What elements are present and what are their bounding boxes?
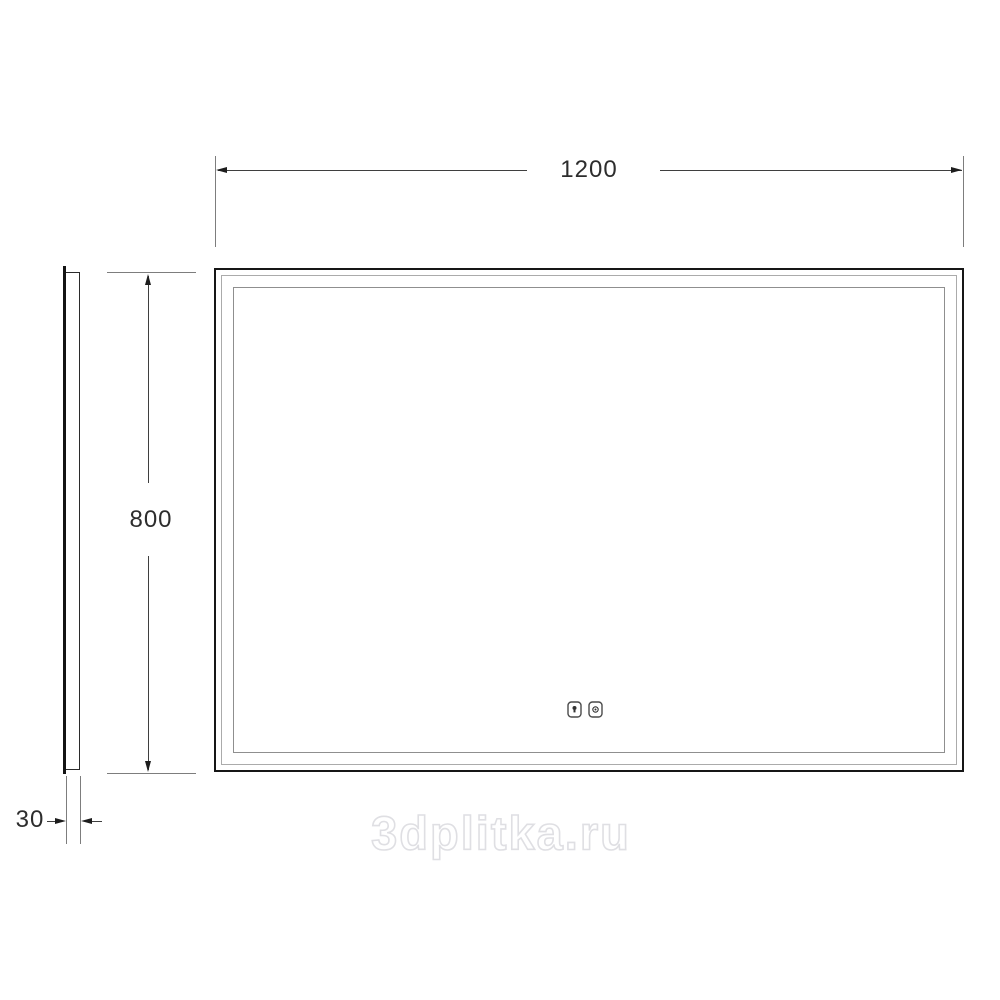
dim-height-arrow-up-icon	[145, 274, 151, 285]
mirror-side-view-body	[66, 272, 80, 770]
touch-light-sensor-icon	[567, 701, 582, 718]
mirror-dimension-diagram: 1200 800 30 3dplitka.ru	[0, 0, 1000, 1000]
dim-width-extension-right	[963, 156, 964, 247]
site-watermark: 3dplitka.ru	[371, 806, 631, 861]
dim-height-extension-bottom	[107, 773, 196, 774]
dim-depth-arrow-right-icon	[81, 818, 92, 824]
dim-width-line-right	[660, 170, 962, 171]
dim-width-arrow-left-icon	[216, 167, 227, 173]
dim-height-line-bottom	[148, 556, 149, 770]
dim-height-extension-top	[107, 272, 196, 273]
dim-width-label: 1200	[556, 156, 621, 184]
dim-height-line-top	[148, 276, 149, 483]
mirror-light-strip-inner-line	[233, 287, 945, 753]
dim-height-label: 800	[125, 506, 176, 534]
dim-depth-extension-left	[66, 776, 67, 844]
dim-height-arrow-down-icon	[145, 761, 151, 772]
dim-width-line-left	[218, 170, 527, 171]
touch-clock-sensor-icon	[588, 701, 603, 718]
dim-depth-extension-right	[80, 776, 81, 844]
mirror-front-view-frame	[214, 268, 964, 772]
dim-depth-label: 30	[16, 806, 45, 834]
dim-depth-arrow-left-icon	[55, 818, 66, 824]
dim-width-arrow-right-icon	[951, 167, 962, 173]
